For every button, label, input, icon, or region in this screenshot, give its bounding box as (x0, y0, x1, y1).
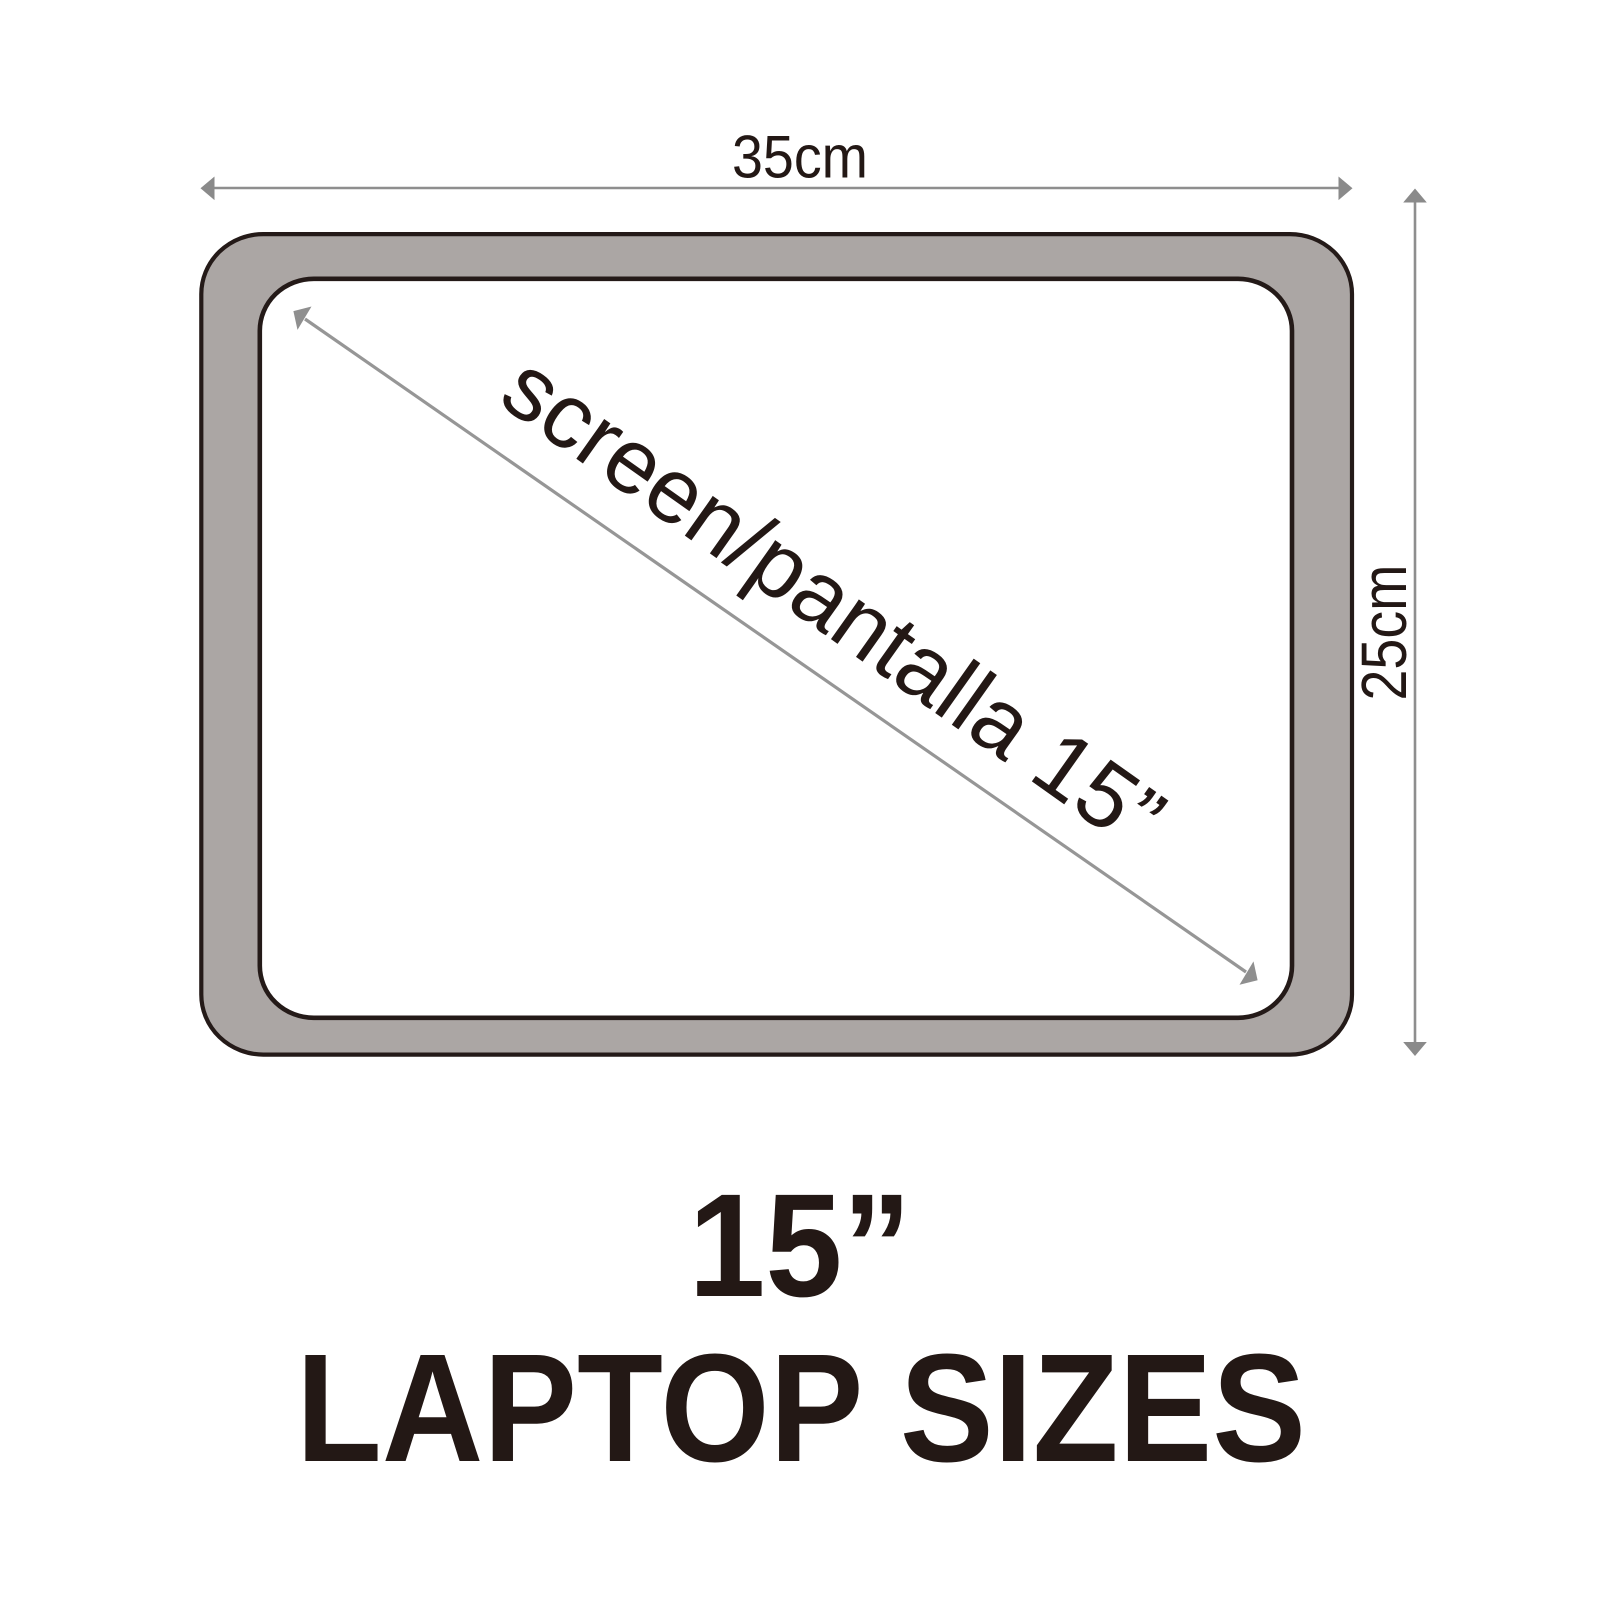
svg-text:25cm: 25cm (1348, 565, 1420, 701)
svg-text:LAPTOP SIZES: LAPTOP SIZES (296, 1322, 1306, 1494)
svg-text:35cm: 35cm (732, 124, 868, 191)
svg-text:15”: 15” (689, 1164, 912, 1328)
